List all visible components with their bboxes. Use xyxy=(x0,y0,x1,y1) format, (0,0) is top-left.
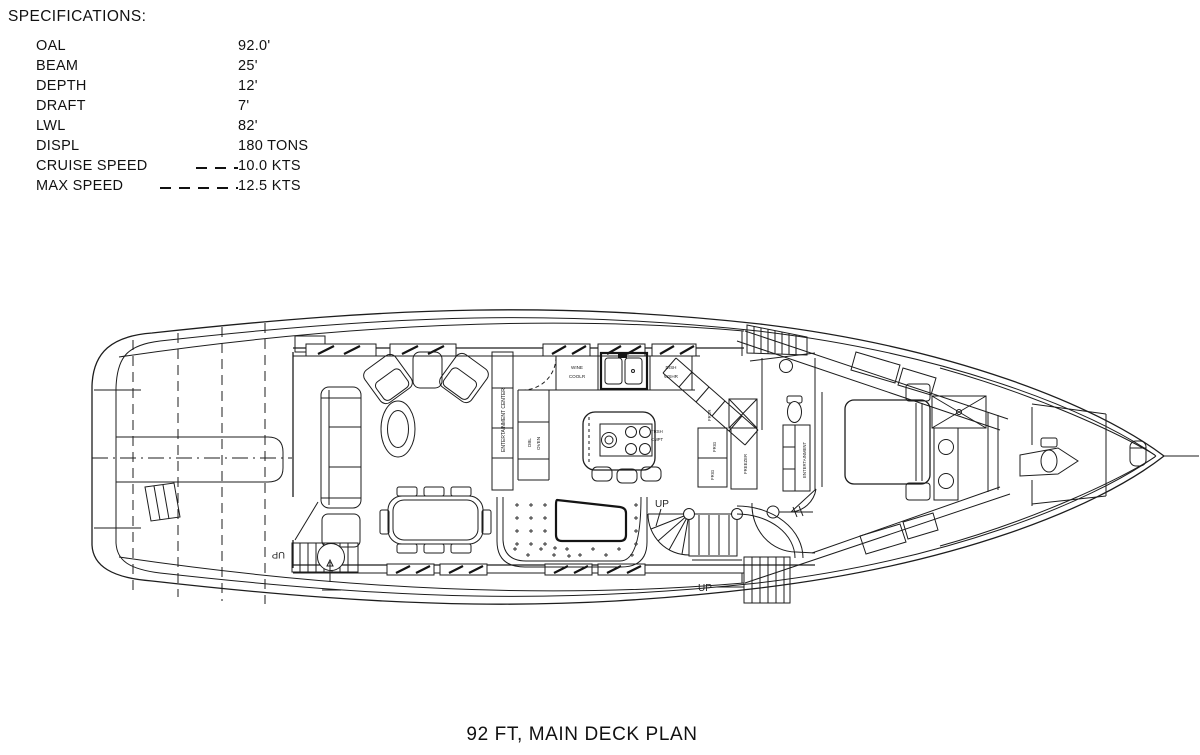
plan-title: 92 FT, MAIN DECK PLAN xyxy=(0,724,1182,746)
wine-cooler-label: WINE xyxy=(571,365,583,370)
settee-upholstery-dots xyxy=(513,503,638,558)
wine-cooler-label: COOLR xyxy=(569,374,586,379)
freezer-abbr-label: FRZR xyxy=(707,410,712,421)
transom-door xyxy=(116,437,283,482)
transom-steps xyxy=(145,483,180,521)
vanity xyxy=(752,503,815,553)
dishwasher-label: WSHR xyxy=(664,374,679,379)
entertainment-center-label: ENTERTAINMENT CENTER xyxy=(501,388,507,452)
day-head-sink xyxy=(780,360,793,373)
trash-compactor-label: CMPT xyxy=(651,437,664,442)
master-bed xyxy=(845,400,930,484)
windlass xyxy=(1130,441,1146,466)
dining-table xyxy=(380,487,491,553)
galley-door-swing xyxy=(523,357,556,390)
bar-stool xyxy=(592,467,612,481)
pantry-cabinets xyxy=(663,358,758,445)
up-leader xyxy=(656,509,661,526)
double-oven-label: OVEN xyxy=(536,437,541,450)
deck-plan-drawing: ENTERTAINMENT CENTER WINE COOLR DISH WSH… xyxy=(0,0,1200,755)
dishwasher-label: DISH xyxy=(666,365,677,370)
fridge-label: FRIG xyxy=(710,469,715,480)
nightstand xyxy=(906,483,930,500)
fridge-label: FRIG xyxy=(712,441,717,452)
galley-island xyxy=(583,412,661,483)
aft-deck xyxy=(92,323,292,604)
trash-compactor-label: TRSH xyxy=(651,429,663,434)
dumbwaiter-x-cabinet xyxy=(729,399,757,428)
up-label-side: UP xyxy=(698,583,712,594)
deck-box xyxy=(851,352,900,383)
deck-box xyxy=(903,513,938,539)
double-oven xyxy=(518,422,549,459)
side-table xyxy=(413,352,442,388)
settee xyxy=(497,497,647,567)
day-head xyxy=(762,358,822,491)
dresser xyxy=(934,428,958,500)
galley-sink xyxy=(601,352,647,389)
hanging-locker xyxy=(932,396,986,428)
entertainment-label: ENTERTAINMENT xyxy=(802,441,807,478)
freezer-label: FREEZER xyxy=(743,454,748,474)
center-stairs xyxy=(648,506,803,560)
sofa xyxy=(321,387,361,508)
bar-stool xyxy=(641,467,661,481)
armchair-right xyxy=(437,351,491,406)
day-head-toilet xyxy=(787,396,802,423)
aft-door-leaf xyxy=(295,502,318,540)
up-label-aft: UP xyxy=(272,549,285,560)
armchair-left xyxy=(361,352,415,407)
up-label-center: UP xyxy=(655,499,669,510)
coffee-table xyxy=(381,401,415,457)
cooktop xyxy=(600,424,652,456)
bow-toilet xyxy=(1041,438,1057,472)
bow-compartment xyxy=(988,404,1146,506)
double-oven-label: DBL xyxy=(527,438,532,447)
end-table xyxy=(322,514,360,547)
settee-table xyxy=(556,500,626,541)
blueprint-page: SPECIFICATIONS: OAL 92.0' BEAM 25' DEPTH… xyxy=(0,0,1200,755)
bar-stool xyxy=(617,469,637,483)
